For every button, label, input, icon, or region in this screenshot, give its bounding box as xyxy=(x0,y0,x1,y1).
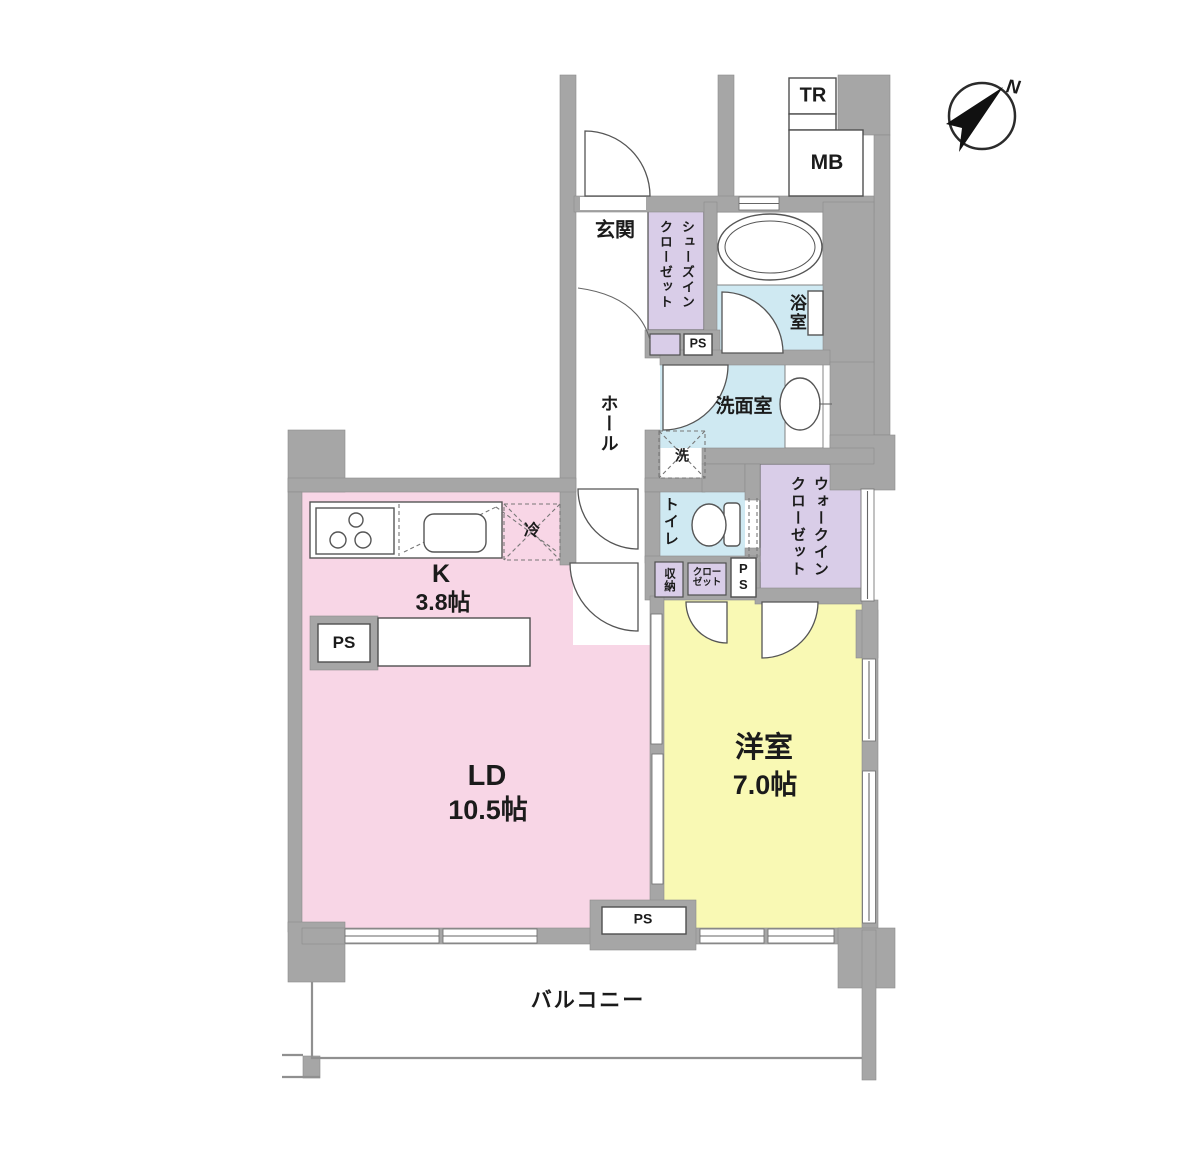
bathroom-window xyxy=(739,197,779,210)
room-label-mb: MB xyxy=(811,152,844,174)
living-dining-window-2 xyxy=(443,929,537,943)
compass-north-label: N xyxy=(1005,77,1021,99)
room-label-shoes-closet-line1: シューズイン xyxy=(680,220,694,310)
room-label-washroom: 洗面室 xyxy=(715,397,772,417)
shoes-closet-floor xyxy=(648,202,704,330)
bath-counter xyxy=(808,291,823,335)
wic-side-window xyxy=(861,489,874,601)
bathtub-icon xyxy=(718,214,822,280)
toilet-icon xyxy=(692,503,740,546)
western-room-window-1 xyxy=(700,929,764,943)
living-dining-window-1 xyxy=(345,929,439,943)
trunk-room-shelf xyxy=(789,114,836,130)
western-room-window-2 xyxy=(768,929,834,943)
room-label-shoes-closet-line2: クローゼット xyxy=(658,220,672,310)
room-label-bathroom: 浴室 xyxy=(787,294,805,332)
stove-icon xyxy=(316,508,394,554)
room-label-living-dining-size: 10.5帖 xyxy=(448,796,528,824)
room-label-tr: TR xyxy=(800,86,827,107)
room-label-western-room-size: 7.0帖 xyxy=(733,771,798,799)
label-ps-bottom: PS xyxy=(634,912,653,927)
room-label-closet-line2: ゼット xyxy=(693,578,722,588)
entrance-door-opening xyxy=(580,197,646,210)
floor-plan: N TR MB 玄関 シューズイン クローゼット 浴室 洗面室 洗 ホール トイ… xyxy=(0,0,1200,1156)
room-label-storage: 収納 xyxy=(663,568,675,593)
room-label-kitchen-name: K xyxy=(432,561,450,587)
room-label-living-dining-name: LD xyxy=(468,761,507,791)
label-refrigerator: 冷 xyxy=(524,524,540,541)
sink-icon xyxy=(424,514,486,552)
western-room-side-window-2 xyxy=(863,771,876,923)
label-ps-top: PS xyxy=(690,337,707,350)
washbasin-icon xyxy=(780,378,832,430)
room-label-kitchen-size: 3.8帖 xyxy=(416,590,471,614)
label-ps-kitchen: PS xyxy=(333,634,356,652)
label-washing-machine: 洗 xyxy=(675,449,689,464)
room-label-toilet: トイレ xyxy=(662,497,678,548)
room-label-balcony: バルコニー xyxy=(531,990,646,1012)
room-label-hall: ホール xyxy=(599,394,618,454)
room-label-wic-line1: ウォークイン xyxy=(812,476,828,578)
western-room-side-window-1 xyxy=(863,659,876,741)
room-label-western-room-name: 洋室 xyxy=(735,733,793,763)
room-label-genkan: 玄関 xyxy=(595,221,635,242)
label-ps-vertical: PS xyxy=(736,561,750,593)
shoes-closet-lower xyxy=(650,334,680,355)
kitchen-counter-island xyxy=(378,618,530,666)
entrance-door-arc xyxy=(585,131,650,196)
floor-plan-drawing xyxy=(0,0,1200,1156)
room-label-closet: クロー ゼット xyxy=(693,568,722,588)
room-label-wic-line2: クローゼット xyxy=(789,476,805,578)
